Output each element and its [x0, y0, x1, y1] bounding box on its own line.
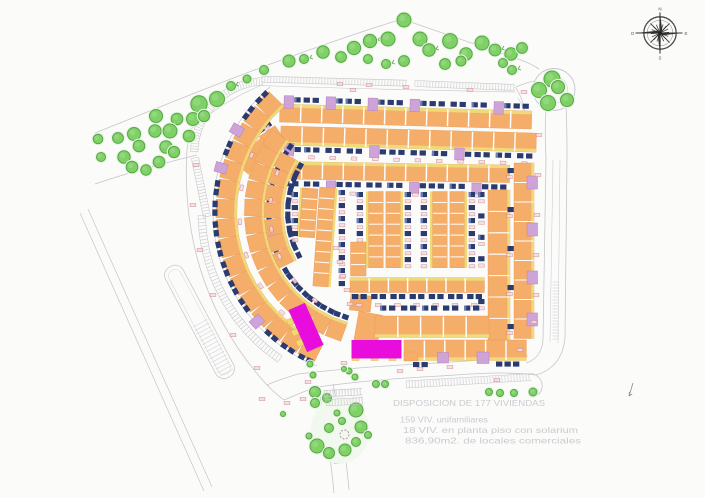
svg-text:N: N: [658, 7, 661, 12]
svg-text:E: E: [684, 31, 687, 36]
svg-text:18 VIV. en planta piso co: 18 VIV. en planta piso con solarium: [403, 425, 578, 435]
svg-text:159 VIV. unifamiliares: 159 VIV. unifamiliares: [400, 415, 488, 425]
svg-text:836,90m2. de locales comerc: 836,90m2. de locales comerciales: [405, 436, 581, 446]
svg-text:O: O: [631, 31, 635, 36]
svg-text:DISPOSICION DE 177 VIVIENDA: DISPOSICION DE 177 VIVIENDAS: [393, 398, 545, 408]
svg-text:S: S: [658, 56, 661, 61]
